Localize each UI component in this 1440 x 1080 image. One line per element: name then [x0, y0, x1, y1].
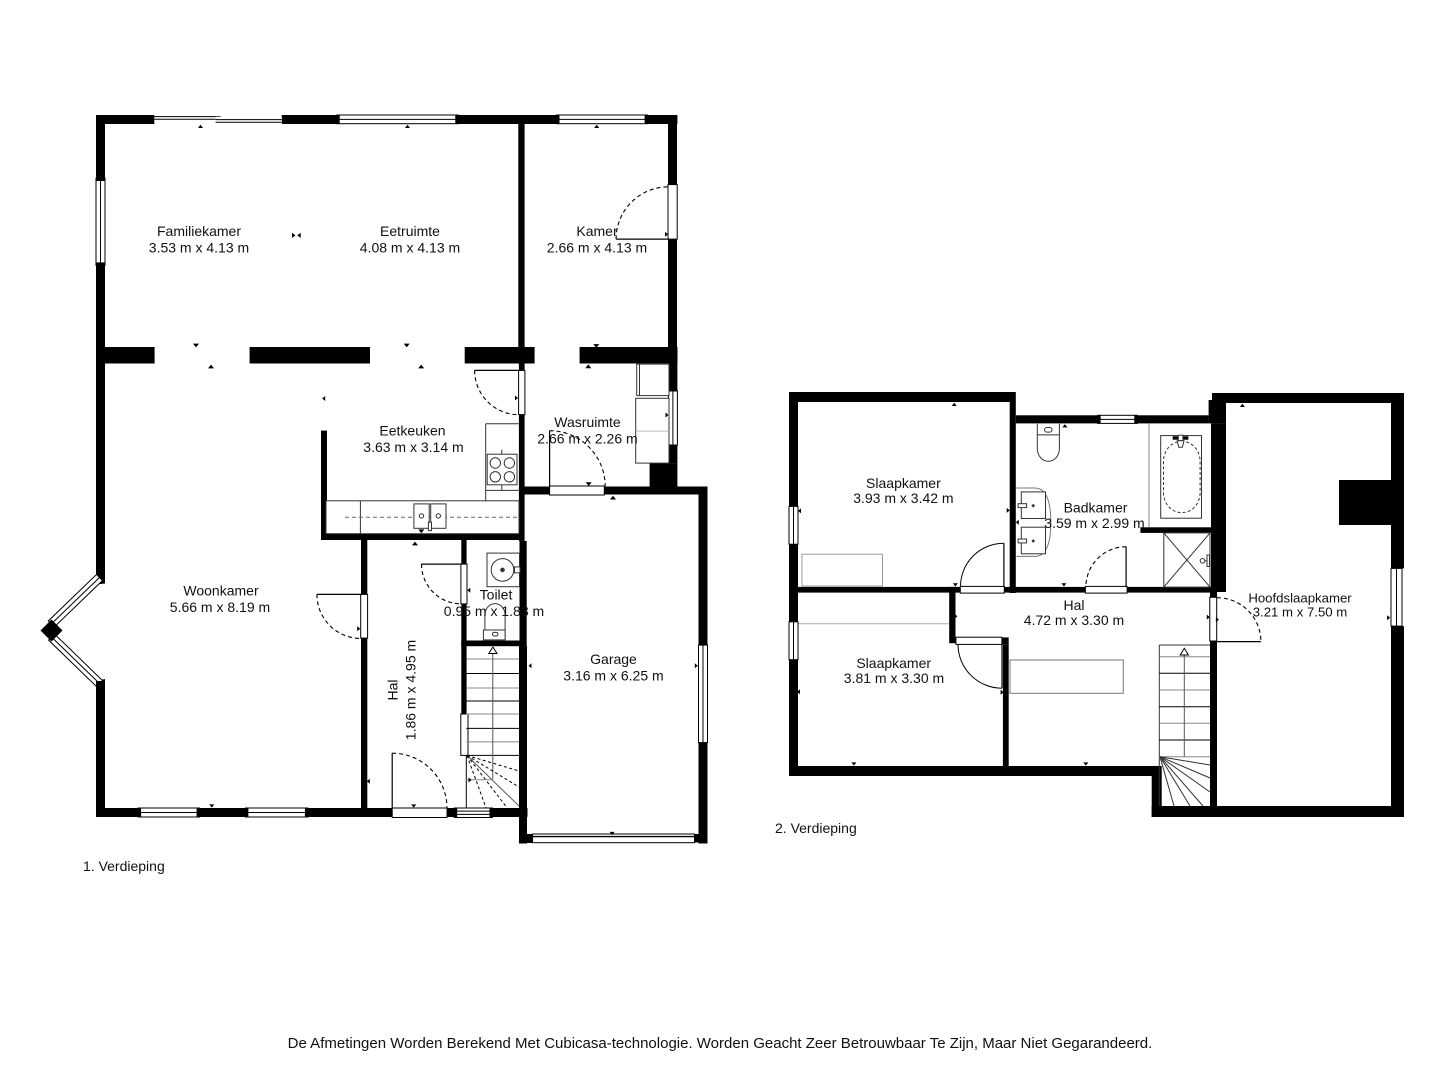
svg-text:Garage: Garage	[590, 651, 637, 667]
svg-text:Woonkamer: Woonkamer	[183, 583, 259, 599]
svg-text:Eetkeuken: Eetkeuken	[379, 423, 445, 439]
svg-text:Toilet: Toilet	[480, 587, 513, 603]
svg-text:Hal: Hal	[385, 679, 401, 700]
svg-text:0.95 m x 1.83 m: 0.95 m x 1.83 m	[444, 603, 544, 619]
svg-text:4.72 m x 3.30 m: 4.72 m x 3.30 m	[1024, 612, 1124, 628]
svg-text:3.16 m x 6.25 m: 3.16 m x 6.25 m	[563, 668, 663, 684]
svg-text:Wasruimte: Wasruimte	[554, 414, 621, 430]
svg-text:Slaapkamer: Slaapkamer	[866, 475, 941, 491]
svg-text:De Afmetingen Worden Berekend: De Afmetingen Worden Berekend Met Cubica…	[288, 1035, 1153, 1052]
svg-text:Familiekamer: Familiekamer	[157, 223, 241, 239]
svg-text:Kamer: Kamer	[576, 223, 618, 239]
svg-text:Slaapkamer: Slaapkamer	[856, 655, 931, 671]
svg-text:3.93 m x 3.42 m: 3.93 m x 3.42 m	[853, 490, 953, 506]
svg-text:Hal: Hal	[1063, 597, 1084, 613]
svg-text:1.86 m x 4.95 m: 1.86 m x 4.95 m	[403, 640, 419, 740]
svg-text:Eetruimte: Eetruimte	[380, 223, 440, 239]
svg-text:2.66 m x 2.26 m: 2.66 m x 2.26 m	[537, 431, 637, 447]
svg-text:Hoofdslaapkamer: Hoofdslaapkamer	[1248, 591, 1352, 606]
svg-text:5.66 m x 8.19 m: 5.66 m x 8.19 m	[170, 599, 270, 615]
svg-text:3.59 m x 2.99 m: 3.59 m x 2.99 m	[1044, 515, 1144, 531]
svg-text:1. Verdieping: 1. Verdieping	[83, 858, 165, 874]
svg-text:Badkamer: Badkamer	[1064, 500, 1128, 516]
svg-text:2. Verdieping: 2. Verdieping	[775, 820, 857, 836]
svg-text:3.81 m x 3.30 m: 3.81 m x 3.30 m	[844, 670, 944, 686]
svg-text:3.53 m x 4.13 m: 3.53 m x 4.13 m	[149, 240, 249, 256]
svg-text:2.66 m x 4.13 m: 2.66 m x 4.13 m	[547, 240, 647, 256]
svg-text:4.08 m x 4.13 m: 4.08 m x 4.13 m	[360, 240, 460, 256]
svg-text:3.21 m x 7.50 m: 3.21 m x 7.50 m	[1253, 605, 1348, 620]
svg-text:3.63 m x 3.14 m: 3.63 m x 3.14 m	[363, 439, 463, 455]
